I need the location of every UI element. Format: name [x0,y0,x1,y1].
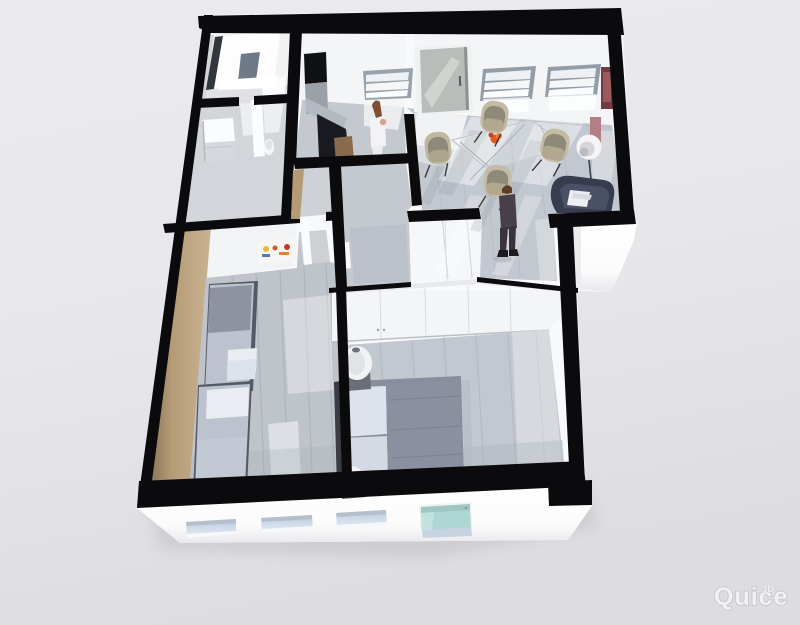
svg-text:Quice: Quice [714,583,788,611]
svg-text:3D: 3D [762,584,774,595]
